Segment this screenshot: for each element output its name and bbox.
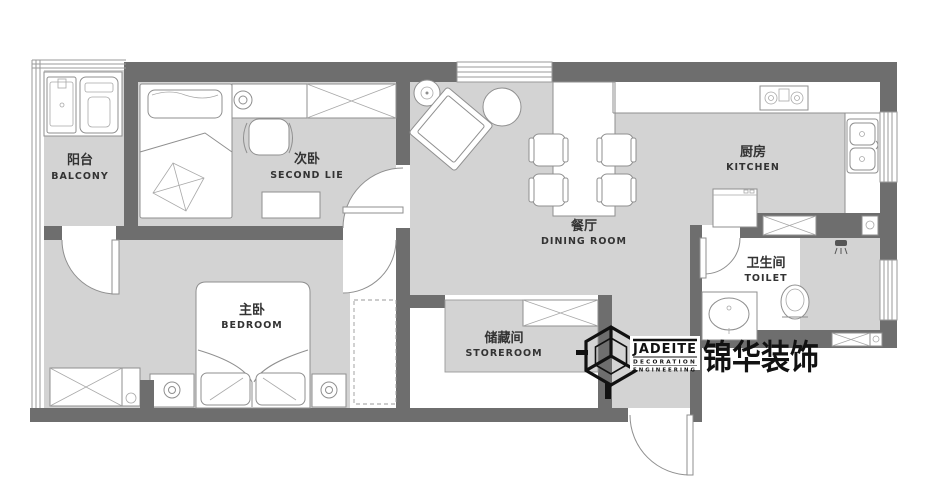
vanity-sink [702, 292, 757, 340]
wall-bedroom-divider [116, 226, 343, 240]
fridge-icon [713, 189, 757, 227]
balcony-door-opening [62, 226, 116, 240]
wall-storeroom-left [396, 228, 410, 408]
kitchen-drain-box [862, 216, 878, 235]
wall-top-left [124, 62, 457, 82]
floor-plan: 阳台 BALCONY 次卧 SECOND LIE 餐厅 DINING ROOM … [0, 0, 940, 482]
logo-brand-text: JADEITE [632, 342, 697, 357]
nightstand-left [150, 374, 194, 407]
entry-door-swing [630, 415, 690, 475]
washing-machine-icon [80, 77, 118, 133]
logo-brand-cn-text: 锦华装饰 [703, 338, 819, 378]
storeroom-label-zh: 储藏间 [483, 330, 523, 346]
dining-chair [597, 174, 636, 206]
bed2-rug [262, 192, 320, 218]
wall-right-a [880, 82, 897, 112]
wall-right-b [880, 182, 897, 260]
kitchen-label-zh: 厨房 [740, 144, 766, 160]
wall-stub-balcony-door [44, 226, 62, 240]
side-table [483, 88, 521, 126]
wall-dining-bed2 [396, 82, 410, 165]
balcony-label-zh: 阳台 [67, 152, 93, 168]
balcony-door-leaf [112, 240, 119, 294]
laundry-sink-icon [47, 77, 76, 133]
bath-corner-box [870, 333, 882, 346]
logo-sub-text-2: ENGINEERING [633, 368, 697, 374]
toilet-fixture [781, 285, 809, 319]
dining-room-label-zh: 餐厅 [570, 218, 597, 234]
dining-chair [597, 134, 636, 166]
toilet-label-zh: 卫生间 [746, 255, 785, 271]
logo-wordmark: JADEITE DECORATION ENGINEERING [630, 336, 700, 374]
wall-right-c [880, 320, 897, 348]
toilet-door-leaf [700, 238, 706, 278]
second-bedroom-label-en: SECOND LIE [270, 170, 344, 181]
desk [232, 84, 307, 118]
master-bedroom-label-zh: 主卧 [239, 302, 265, 318]
corridor-floor [612, 225, 690, 408]
balcony-label-en: BALCONY [51, 171, 109, 182]
dining-room-label-en: DINING ROOM [541, 236, 627, 247]
storeroom-label-en: STOREROOM [465, 348, 542, 359]
shower-area [800, 238, 880, 330]
wall-bottom [30, 408, 628, 422]
wardrobe [307, 84, 396, 118]
master-wardrobe [50, 368, 154, 408]
bed2-door-leaf [343, 207, 403, 213]
window-top [457, 62, 552, 82]
wall-top-right [552, 62, 897, 82]
dining-chair [529, 134, 568, 166]
entry-door-leaf [687, 415, 693, 475]
master-bedroom-label-en: BEDROOM [221, 320, 283, 331]
window-right-lower [880, 260, 897, 320]
stove-icon [760, 86, 808, 110]
nightstand-right [312, 374, 346, 407]
double-bed [196, 282, 310, 408]
kitchen-label-en: KITCHEN [726, 162, 780, 173]
kitchen-sink-icon [847, 119, 878, 173]
wall-storeroom-top [398, 295, 445, 308]
toilet-label-en: TOILET [744, 273, 787, 284]
desk-chair [244, 119, 293, 155]
logo-sub-text-1: DECORATION [633, 360, 697, 366]
single-bed [140, 84, 232, 218]
balcony-furniture [44, 72, 122, 136]
second-bedroom-label-zh: 次卧 [294, 151, 320, 167]
wall-balcony-divider [124, 62, 138, 226]
dining-chair [529, 174, 568, 206]
toilet-door-swing [704, 238, 740, 274]
window-right-upper [880, 112, 897, 182]
